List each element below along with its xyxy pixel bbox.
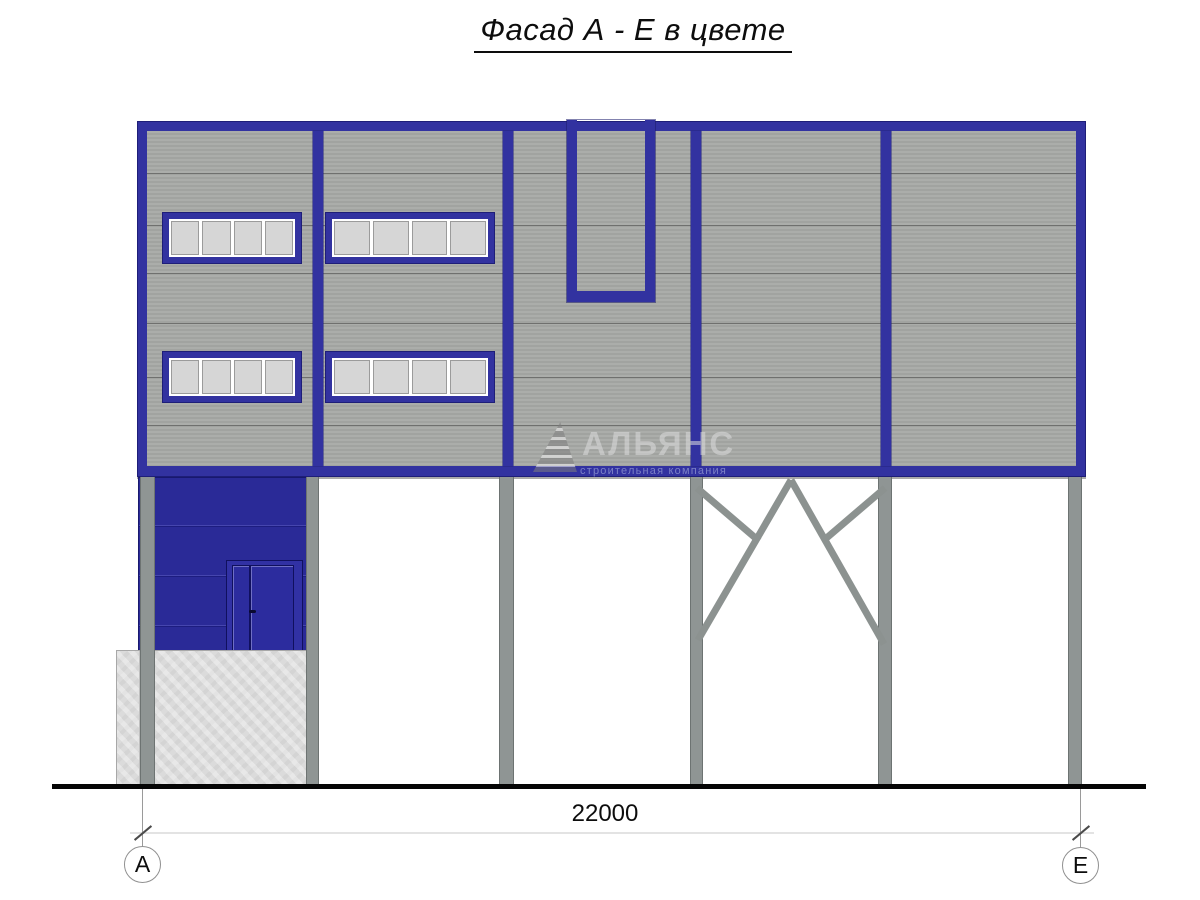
window-pane <box>265 221 293 255</box>
panel-joint-line <box>147 323 1076 324</box>
window-pane <box>171 221 199 255</box>
window-pane <box>234 360 262 394</box>
window-sash <box>169 219 295 257</box>
window-row1-left <box>162 212 302 264</box>
facade-mullion <box>881 131 891 466</box>
column-e <box>1068 477 1082 787</box>
window-pane <box>412 360 448 394</box>
dimension-value: 22000 <box>550 800 660 828</box>
window-pane <box>412 221 448 255</box>
window-pane <box>334 221 370 255</box>
entrance-wall <box>138 477 307 652</box>
window-row1-right <box>325 212 495 264</box>
window-sash <box>332 219 488 257</box>
window-pane <box>450 360 486 394</box>
window-pane <box>234 221 262 255</box>
window-row2-right <box>325 351 495 403</box>
cross-bracing <box>690 477 892 649</box>
window-pane <box>334 360 370 394</box>
roof-recess-channel <box>567 120 655 302</box>
facade-mullion <box>691 131 701 466</box>
drawing-header: Фасад А - Е в цвете <box>0 12 1200 53</box>
door-leaf-right <box>250 565 294 652</box>
column-3 <box>499 477 514 787</box>
facade-mullion <box>503 131 513 466</box>
column-a <box>140 477 155 787</box>
grid-bubble-e: Е <box>1062 847 1099 884</box>
window-pane <box>202 221 230 255</box>
extension-line-e <box>1080 789 1081 847</box>
panel-joint-line <box>147 425 1076 426</box>
wall-joint-line <box>139 526 306 527</box>
column-2 <box>306 477 319 787</box>
window-pane <box>373 221 409 255</box>
grid-bubble-a: А <box>124 846 161 883</box>
facade-mullion <box>313 131 323 466</box>
facade-upper-block <box>137 121 1086 477</box>
window-pane <box>373 360 409 394</box>
window-pane <box>202 360 230 394</box>
extension-line-a <box>142 789 143 847</box>
page-title: Фасад А - Е в цвете <box>474 12 791 53</box>
window-sash <box>332 358 488 396</box>
grid-label-a: А <box>135 851 150 878</box>
window-pane <box>171 360 199 394</box>
window-pane <box>450 221 486 255</box>
facade-drawing-canvas: Фасад А - Е в цвете <box>0 0 1200 900</box>
door-leaf-left <box>232 565 250 652</box>
window-pane <box>265 360 293 394</box>
window-sash <box>169 358 295 396</box>
entrance-door <box>226 560 303 653</box>
door-handle <box>249 610 256 613</box>
dimension-line <box>130 832 1094 834</box>
grid-label-e: Е <box>1073 852 1088 879</box>
ground-line <box>52 784 1146 789</box>
window-row2-left <box>162 351 302 403</box>
